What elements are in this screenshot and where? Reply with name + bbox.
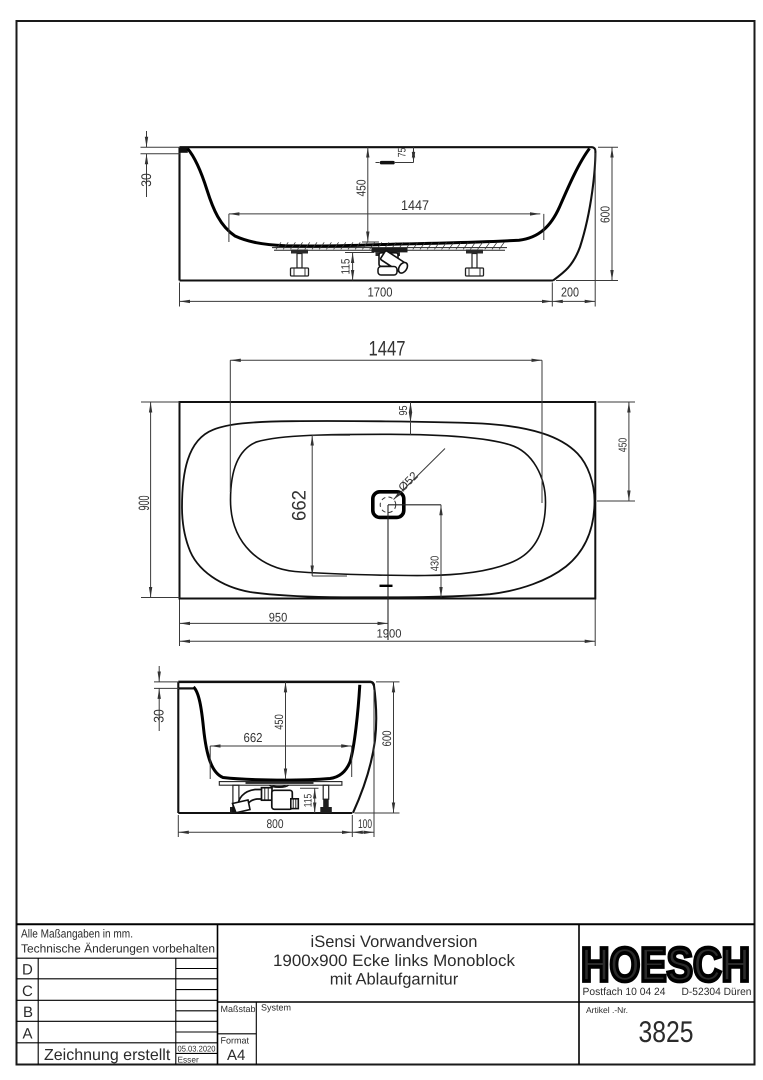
svg-text:A4: A4 [227,1047,245,1064]
svg-text:A: A [23,1026,33,1043]
svg-text:B: B [23,1004,33,1021]
svg-text:900: 900 [136,496,153,511]
svg-text:System: System [261,1003,291,1013]
svg-text:1900: 1900 [377,627,402,641]
svg-text:Alle Maßangaben in mm.: Alle Maßangaben in mm. [21,927,133,941]
svg-text:75: 75 [397,148,409,158]
svg-text:115: 115 [303,794,315,808]
svg-text:Format: Format [221,1036,250,1046]
svg-text:1700: 1700 [368,285,393,300]
svg-text:450: 450 [272,714,286,730]
svg-text:100: 100 [358,817,372,831]
svg-text:D-52304 Düren: D-52304 Düren [682,986,752,998]
svg-text:115: 115 [339,258,353,274]
svg-text:iSensi Vorwandversion: iSensi Vorwandversion [311,933,478,951]
svg-text:Zeichnung erstellt: Zeichnung erstellt [44,1047,171,1064]
svg-text:950: 950 [269,611,288,625]
svg-text:Ø52: Ø52 [397,470,421,494]
svg-text:Esser: Esser [178,1055,199,1065]
svg-text:D: D [22,962,33,979]
svg-text:05.03.2020: 05.03.2020 [178,1044,216,1054]
svg-text:450: 450 [354,180,369,197]
svg-text:Artikel .-Nr.: Artikel .-Nr. [586,1005,628,1015]
svg-text:HOESCH: HOESCH [581,939,750,992]
svg-text:95: 95 [398,406,410,416]
svg-text:450: 450 [618,438,630,453]
svg-text:C: C [22,983,33,1000]
svg-text:Maßstab: Maßstab [221,1004,256,1014]
svg-text:1447: 1447 [401,197,429,213]
svg-text:662: 662 [289,490,311,521]
svg-text:600: 600 [380,730,394,746]
svg-text:30: 30 [138,173,154,187]
svg-text:Postfach 10 04 24: Postfach 10 04 24 [583,986,666,998]
svg-text:600: 600 [598,206,613,223]
svg-text:30: 30 [150,709,166,723]
svg-text:662: 662 [244,730,263,745]
svg-text:mit Ablaufgarnitur: mit Ablaufgarnitur [330,971,459,989]
svg-text:800: 800 [267,817,284,831]
svg-text:1447: 1447 [369,338,406,361]
svg-text:Technische Änderungen vorbehal: Technische Änderungen vorbehalten [21,942,215,956]
svg-text:1900x900 Ecke links Monoblock: 1900x900 Ecke links Monoblock [273,952,516,970]
svg-text:3825: 3825 [639,1016,694,1049]
svg-text:430: 430 [430,556,442,572]
svg-text:200: 200 [561,285,579,300]
